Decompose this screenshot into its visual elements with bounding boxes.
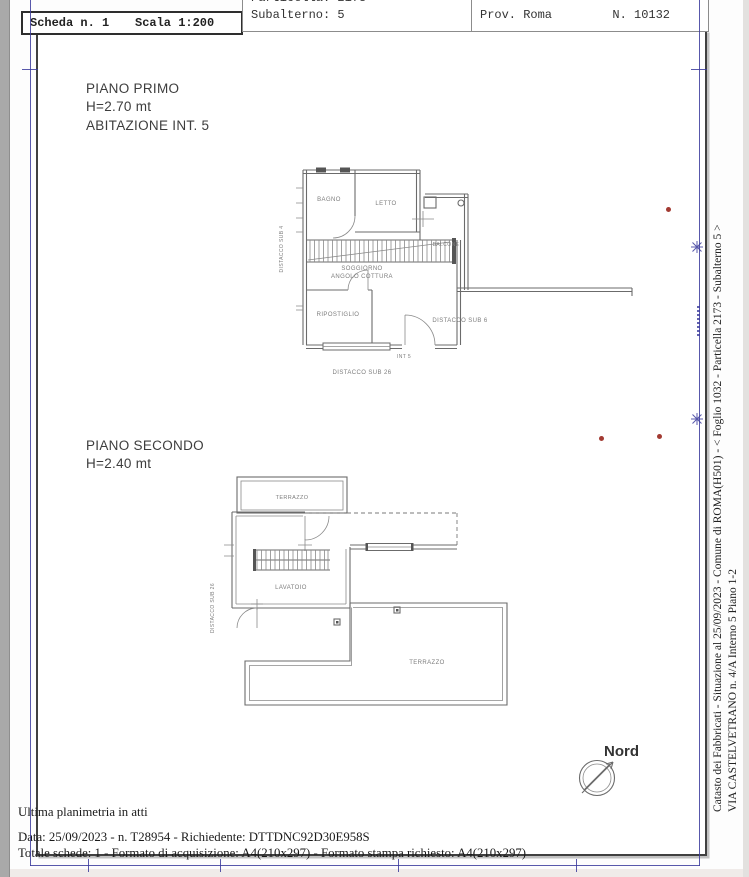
registration-tick-bottom-1: [88, 859, 89, 872]
label-distacco-sub4: DISTACCO SUB 4: [279, 226, 285, 273]
footer-data: Data: 25/09/2023 - n. T28954 - Richieden…: [18, 830, 370, 845]
registration-line-bottom: [30, 865, 700, 866]
room-label-terrazzo-piccolo: TERRAZZO: [276, 495, 309, 501]
registration-line-right: [699, 0, 700, 866]
north-compass-icon: [576, 756, 622, 802]
floor1-height: H=2.70 mt: [86, 98, 209, 116]
room-label-ripostiglio: RIPOSTIGLIO: [317, 312, 360, 318]
label-distacco-sub26-f1: DISTACCO SUB 26: [333, 370, 392, 376]
registration-tick-right: [691, 69, 707, 70]
footer-formato: Totale schede: 1 - Formato di acquisizio…: [18, 846, 526, 861]
registration-star-icon-1: [690, 240, 704, 254]
floor2-plan: TERRAZZO LAVATOIO TERRAZZO DISTACCO SUB …: [200, 470, 520, 720]
numero-label: N. 10132: [612, 8, 670, 22]
side-reference-line2: VIA CASTELVETRANO n. 4/A Interno 5 Piano…: [726, 296, 741, 812]
label-int5: INT 5: [397, 354, 411, 360]
floor1-title: PIANO PRIMO: [86, 80, 209, 98]
registration-star-icon-2: [690, 412, 704, 426]
room-label-letto: LETTO: [375, 201, 396, 207]
red-dot: [657, 434, 662, 439]
registration-tick-left: [22, 69, 38, 70]
label-distacco-sub26-f2: DISTACCO SUB 26: [210, 583, 216, 633]
floor2-walls: [224, 477, 507, 705]
scala-label: Scala 1:200: [135, 16, 214, 30]
blue-micro-annotation: [697, 306, 700, 336]
header-identificativi-box: Particella: 2173 Subalterno: 5 Prov. Rom…: [242, 0, 709, 32]
header-scheda-box: Scheda n. 1 Scala 1:200: [21, 11, 243, 35]
room-label-bagno: BAGNO: [317, 197, 341, 203]
room-label-lavatoio: LAVATOIO: [275, 585, 307, 591]
particella-label-clipped: Particella: 2173: [251, 0, 366, 5]
room-label-soggiorno-1: SOGGIORNO: [341, 266, 382, 272]
floor2-room-labels: TERRAZZO LAVATOIO TERRAZZO DISTACCO SUB …: [210, 495, 445, 666]
floor2-height: H=2.40 mt: [86, 455, 204, 473]
registration-line-left: [30, 0, 31, 866]
side-reference-text: Catasto dei Fabbricati - Situazione al 2…: [711, 296, 740, 812]
scheda-label: Scheda n. 1: [23, 16, 109, 30]
floor2-title: PIANO SECONDO: [86, 437, 204, 455]
scan-edge-left: [0, 0, 10, 877]
side-reference-line1: Catasto dei Fabbricati - Situazione al 2…: [711, 296, 726, 812]
provincia-label: Prov. Roma: [480, 8, 552, 22]
scan-edge-right: [743, 0, 749, 877]
floor1-subtitle: ABITAZIONE INT. 5: [86, 117, 209, 135]
registration-tick-bottom-2: [220, 859, 221, 872]
header-divider: [471, 0, 472, 31]
scan-edge-bottom: [10, 869, 743, 877]
floor1-stairs-hatch: [308, 240, 450, 262]
registration-tick-bottom-4: [576, 859, 577, 872]
room-label-terrazzo-grande: TERRAZZO: [409, 660, 445, 666]
floor1-plan: BAGNO LETTO BALCONE SOGGIORNO ANGOLO COT…: [255, 160, 645, 385]
cadastral-plan-page: PIANO PRIMO H=2.70 mt ABITAZIONE INT. 5 …: [0, 0, 749, 877]
floor2-title-block: PIANO SECONDO H=2.40 mt: [86, 437, 204, 474]
subalterno-label: Subalterno: 5: [251, 8, 345, 22]
red-dot: [599, 436, 604, 441]
label-distacco-sub6: DISTACCO SUB 6: [432, 318, 487, 324]
north-label: Nord: [604, 743, 639, 760]
red-dot: [666, 207, 671, 212]
floor1-title-block: PIANO PRIMO H=2.70 mt ABITAZIONE INT. 5: [86, 80, 209, 135]
footer-note: Ultima planimetria in atti: [18, 805, 148, 820]
room-label-balcone: BALCONE: [433, 242, 460, 248]
registration-tick-bottom-3: [398, 859, 399, 872]
room-label-soggiorno-2: ANGOLO COTTURA: [331, 274, 393, 280]
